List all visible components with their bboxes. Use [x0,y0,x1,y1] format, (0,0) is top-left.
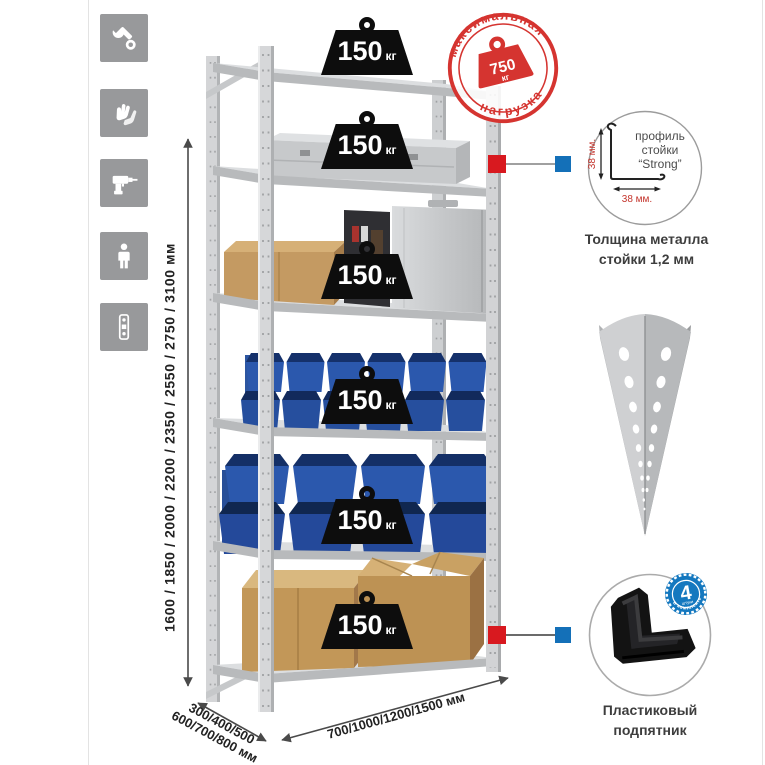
shelf-load-badge-5: 150 кг [321,499,413,544]
profile-label-line2: стойки [642,143,679,157]
max-load-stamp: 750 кг максимальная нагрузка [443,8,563,128]
load-value: 150 [337,254,382,296]
load-value: 150 [337,379,382,421]
shelf-load-badge-2: 150 кг [321,124,413,169]
corner-post-image [592,308,698,538]
rear-left-post [206,56,220,702]
profile-dim-horizontal: 38 мм. [622,194,652,205]
load-unit: кг [386,143,397,157]
profile-label-line3: “Strong” [638,157,681,171]
metal-thickness-line1: Толщина металла [564,230,729,250]
shelf-load-badge-6: 150 кг [321,604,413,649]
plastic-foot-line2: подпятник [570,721,730,741]
feature-tile-assembly [100,14,148,62]
feature-tile-gloves [100,89,148,137]
profile-callout-blue-marker [555,156,571,172]
shelf-load-badge-1: 150 кг [321,30,413,75]
load-unit: кг [386,273,397,287]
front-right-post [486,86,501,672]
foot-callout-blue-marker [555,627,571,643]
front-left-post [258,46,274,712]
load-value: 150 [337,124,382,166]
profile-label-line1: профиль [635,129,685,143]
wrench-icon [107,21,141,55]
load-unit: кг [386,518,397,532]
drill-icon [107,166,141,200]
load-unit: кг [386,398,397,412]
feature-tile-drill [100,159,148,207]
feature-tile-profile [100,303,148,351]
load-value: 150 [337,30,382,72]
profile-dim-vertical: 38 мм. [587,139,598,169]
right-edge-divider [762,0,763,765]
profile-detail-circle: 38 мм. 38 мм. профиль стойки “Strong” [586,109,704,227]
height-dimension-label: 1600 / 1850 / 2000 / 2200 / 2350 / 2550 … [162,208,179,668]
left-edge-divider [88,0,89,765]
metal-thickness-line2: стойки 1,2 мм [564,250,729,270]
rack-profile-icon [107,310,141,344]
gloves-icon [107,96,141,130]
plastic-foot-caption: Пластиковый подпятник [570,701,730,740]
person-icon [107,239,141,273]
shelf-load-badge-4: 150 кг [321,379,413,424]
load-value: 150 [337,604,382,646]
load-value: 150 [337,499,382,541]
product-infographic: 150 кг 150 кг 150 кг 150 кг 150 кг 150 к… [0,0,765,765]
plastic-foot-line1: Пластиковый [570,701,730,721]
feature-tile-person [100,232,148,280]
metal-thickness-caption: Толщина металла стойки 1,2 мм [564,230,729,269]
load-unit: кг [386,623,397,637]
load-unit: кг [386,49,397,63]
shelf-load-badge-3: 150 кг [321,254,413,299]
foot-count-badge: 4 штуки в комплекте [663,571,709,617]
